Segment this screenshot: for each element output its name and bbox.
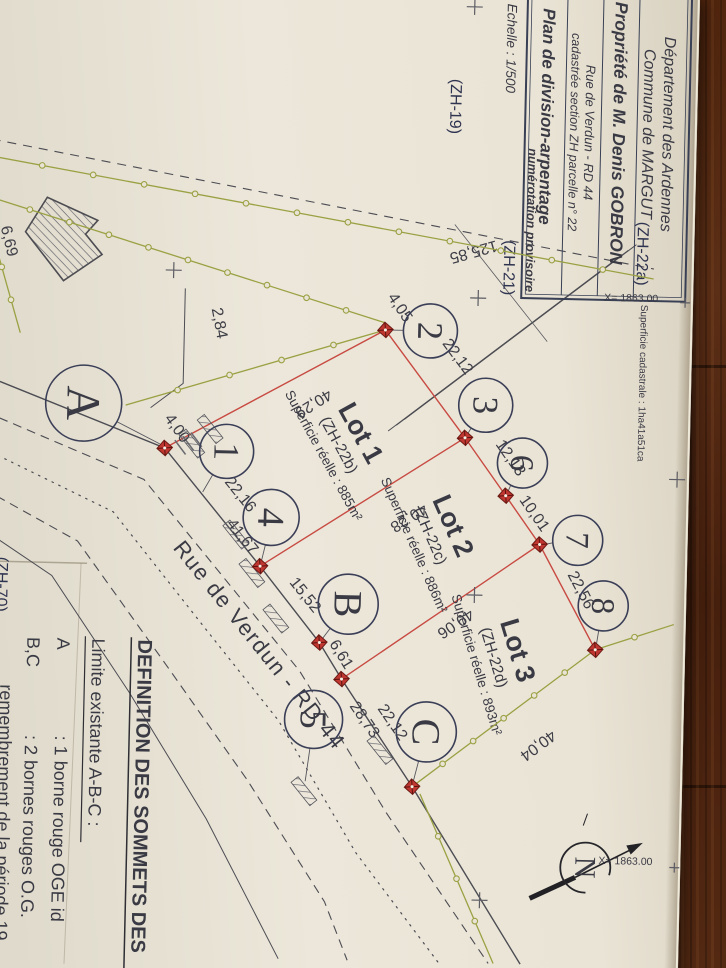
- title-address: Rue de Verdun - RD 44: [580, 65, 598, 201]
- photo-of-survey-plan: Département des Ardennes Commune de MARG…: [0, 0, 726, 968]
- limit-circle-marker: [600, 267, 606, 273]
- point-id-6: 6: [503, 454, 539, 471]
- limit-circle-marker: [27, 207, 33, 213]
- limit-circle-marker: [39, 163, 45, 169]
- legend-subheading: Limite existante A-B-C :: [84, 638, 108, 826]
- limit-circle-marker: [192, 191, 198, 197]
- limit-circle-marker: [472, 918, 478, 924]
- point-id-5: 5: [291, 709, 333, 729]
- limit-circle-marker: [447, 238, 453, 244]
- legend-item-a-text: : 1 borne rouge OGE id: [47, 735, 71, 922]
- point-id-A: A: [56, 385, 110, 421]
- limit-circle-marker: [146, 244, 152, 250]
- point-id-8: 8: [584, 597, 620, 614]
- limit-circle-marker: [67, 219, 73, 225]
- scale-note: Echelle : 1/500: [503, 4, 520, 94]
- limit-circle-marker: [227, 372, 233, 378]
- limit-circle-marker: [454, 876, 460, 882]
- point-id-7: 7: [558, 532, 594, 549]
- limit-circle-marker: [498, 248, 504, 254]
- limit-circle-marker: [0, 264, 5, 270]
- grid-label-x-bottom: X= 1863.00: [598, 855, 652, 868]
- survey-plan-drawing: Département des Ardennes Commune de MARG…: [0, 0, 700, 968]
- legend-item-a-key: A: [53, 637, 73, 649]
- limit-circle-marker: [8, 297, 14, 303]
- limit-circle-marker: [562, 670, 568, 676]
- limit-circle-marker: [279, 357, 285, 363]
- limit-circle-marker: [343, 307, 349, 313]
- limit-circle-marker: [501, 715, 507, 721]
- limit-circle-marker: [294, 210, 300, 216]
- limit-circle-marker: [243, 200, 249, 206]
- limit-circle-marker: [345, 219, 351, 225]
- parcel-zh19: (ZH-19): [446, 79, 464, 134]
- legend-item-bc-text: : 2 bornes rouges O.G.: [17, 735, 41, 919]
- limit-circle-marker: [90, 172, 96, 178]
- limit-circle-marker: [440, 761, 446, 767]
- limit-circle-marker: [141, 181, 147, 187]
- limit-circle-marker: [304, 295, 310, 301]
- limit-circle-marker: [531, 693, 537, 699]
- parcel-zh70: (ZH-70): [0, 557, 10, 612]
- limit-circle-marker: [175, 387, 181, 393]
- limit-circle-marker: [549, 257, 555, 263]
- point-id-C: C: [403, 718, 449, 746]
- limit-circle-marker: [470, 738, 476, 744]
- limit-circle-marker: [331, 342, 337, 348]
- limit-circle-marker: [185, 257, 191, 263]
- point-id-4: 4: [249, 507, 291, 527]
- limit-circle-marker: [396, 229, 402, 235]
- point-id-B: B: [325, 590, 371, 618]
- limit-circle-marker: [632, 634, 638, 640]
- limit-circle-marker: [435, 833, 441, 839]
- point-id-1: 1: [206, 442, 246, 461]
- limit-circle-marker: [106, 232, 112, 238]
- grid-label-x-top: X= 1863.00: [604, 292, 658, 305]
- limit-circle-marker: [264, 282, 270, 288]
- limit-circle-marker: [225, 270, 231, 276]
- point-id-2: 2: [410, 322, 450, 341]
- legend-item-bc-key: B,C: [23, 637, 44, 667]
- paper-sheet: Département des Ardennes Commune de MARG…: [0, 0, 700, 968]
- point-id-3: 3: [465, 396, 505, 415]
- north-letter: N: [568, 856, 601, 878]
